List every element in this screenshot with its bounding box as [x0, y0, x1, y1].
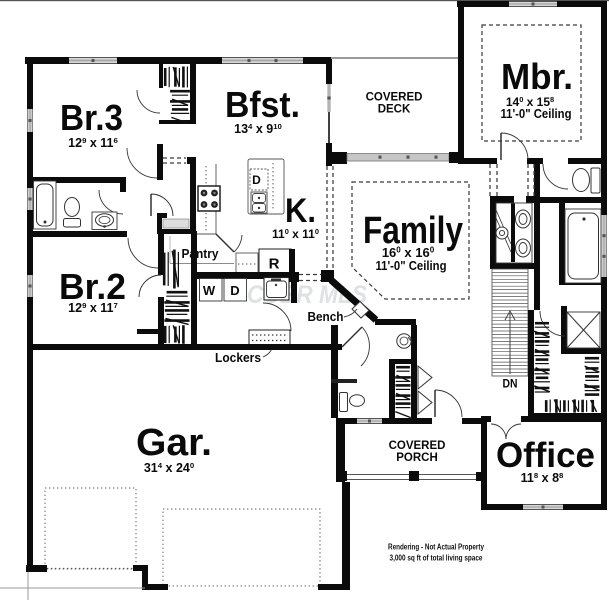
svg-text:Office: Office: [496, 436, 595, 475]
svg-text:Br.3: Br.3: [60, 97, 123, 138]
svg-text:Gar.: Gar.: [136, 422, 212, 464]
svg-text:DN: DN: [503, 379, 518, 391]
svg-text:160 x 160: 160 x 160: [382, 245, 435, 260]
svg-text:K.: K.: [285, 192, 316, 230]
svg-text:11'-0" Ceiling: 11'-0" Ceiling: [501, 107, 572, 121]
svg-text:COVERED: COVERED: [366, 92, 423, 104]
svg-text:3,000 sq ft of total living sp: 3,000 sq ft of total living space: [390, 554, 483, 563]
svg-text:Lockers: Lockers: [215, 350, 261, 365]
svg-text:Bfst.: Bfst.: [225, 84, 300, 125]
svg-text:W: W: [203, 283, 216, 298]
svg-text:R: R: [269, 256, 280, 273]
svg-text:129 x 117: 129 x 117: [68, 301, 118, 315]
svg-text:DECK: DECK: [378, 104, 411, 116]
svg-text:PORCH: PORCH: [396, 452, 438, 464]
svg-text:118 x 88: 118 x 88: [521, 471, 564, 485]
svg-text:COVERED: COVERED: [389, 440, 446, 452]
svg-text:314 x 240: 314 x 240: [144, 461, 194, 475]
svg-text:129 x 116: 129 x 116: [68, 136, 118, 150]
svg-text:Mbr.: Mbr.: [501, 56, 573, 97]
svg-text:D: D: [230, 283, 239, 298]
svg-text:Bench: Bench: [308, 309, 344, 324]
svg-text:110 x 110: 110 x 110: [272, 227, 319, 241]
svg-text:11'-0" Ceiling: 11'-0" Ceiling: [376, 259, 447, 273]
svg-text:D: D: [252, 173, 261, 187]
svg-text:Rendering - Not Actual Propert: Rendering - Not Actual Property: [388, 543, 484, 552]
svg-text:Pantry: Pantry: [182, 247, 219, 261]
